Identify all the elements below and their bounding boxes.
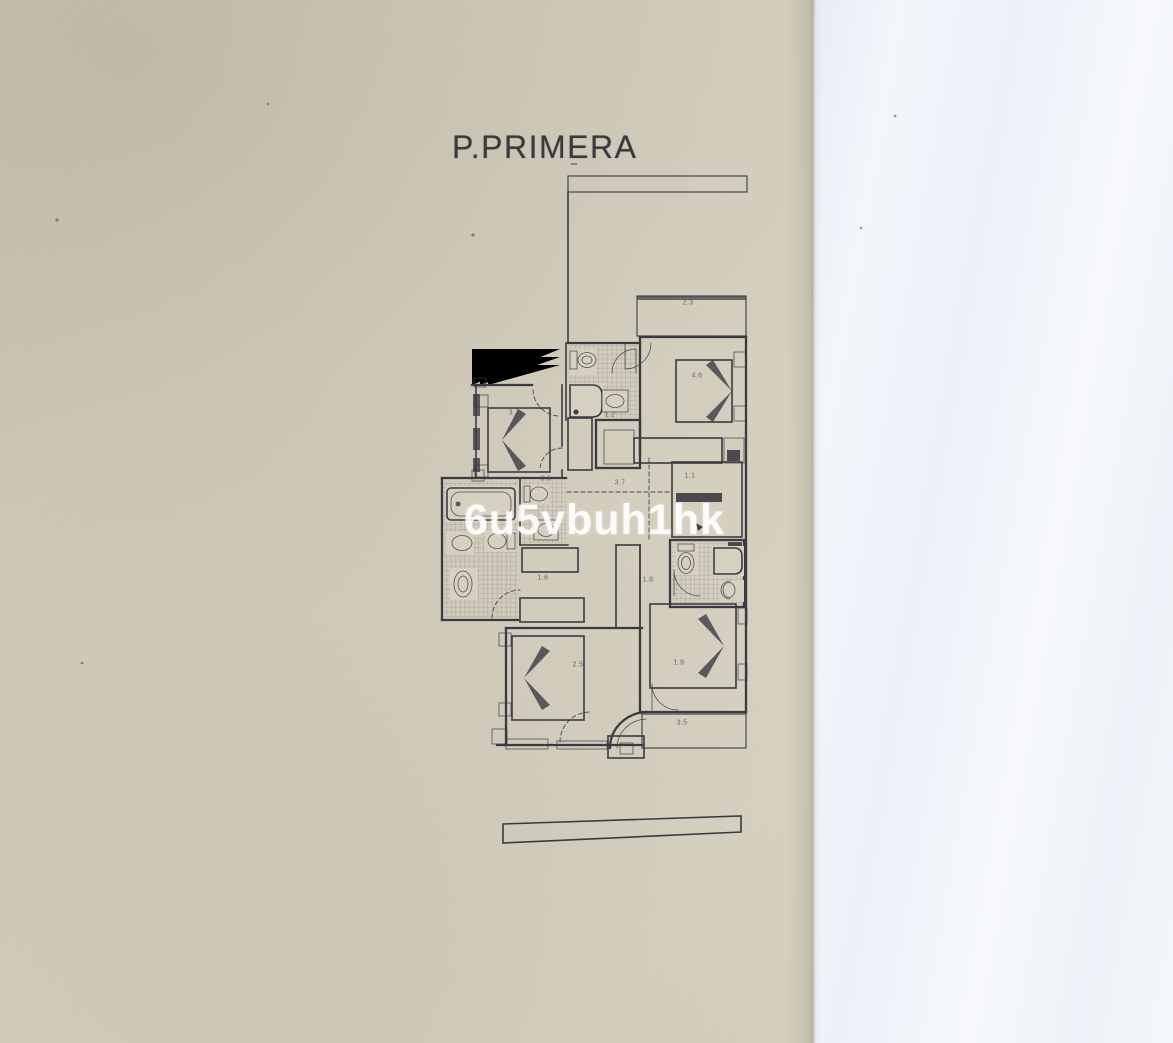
louver-strip-icon xyxy=(642,712,746,748)
curved-wall xyxy=(610,712,646,748)
bed-icon xyxy=(512,636,584,720)
bed-icon xyxy=(650,604,736,688)
bathroom-right xyxy=(670,540,744,607)
toilet-icon xyxy=(570,349,596,375)
bedroom-bottom-right xyxy=(650,604,747,710)
sink-icon xyxy=(602,390,628,412)
shower-icon xyxy=(712,546,744,576)
wardrobe-icon xyxy=(520,598,584,622)
bed-icon xyxy=(488,408,550,472)
door-arc-icon xyxy=(560,712,590,742)
wardrobe-icon xyxy=(634,438,744,463)
toilet-icon xyxy=(676,543,698,575)
pergola-slats-icon xyxy=(613,712,746,820)
wardrobe-icon xyxy=(616,545,640,628)
louver-strip-icon xyxy=(637,296,746,336)
bottom-edge-band xyxy=(503,816,741,843)
nightstand-icon xyxy=(734,406,746,421)
bedroom-top-left xyxy=(472,390,562,481)
door-arc-icon xyxy=(533,390,559,416)
wardrobe-icon xyxy=(568,418,592,470)
sink-icon xyxy=(720,580,744,602)
scanned-floorplan-photo: P.PRIMERA xyxy=(0,0,1173,1043)
bedroom-top-right xyxy=(625,343,746,422)
lower-terrace xyxy=(500,712,746,843)
bathroom-top-middle xyxy=(568,345,638,419)
bidet-icon xyxy=(450,568,478,600)
door-arc-icon xyxy=(540,448,562,470)
watermark: 6u5vbuh1hk xyxy=(464,496,725,545)
shower-icon xyxy=(568,383,604,419)
nightstand-icon xyxy=(734,352,746,367)
pergola-slats-icon xyxy=(645,192,744,296)
terrace-steps xyxy=(472,349,560,387)
upper-terrace xyxy=(568,163,747,343)
bed-icon xyxy=(676,360,732,422)
wardrobe-icon xyxy=(522,548,578,572)
